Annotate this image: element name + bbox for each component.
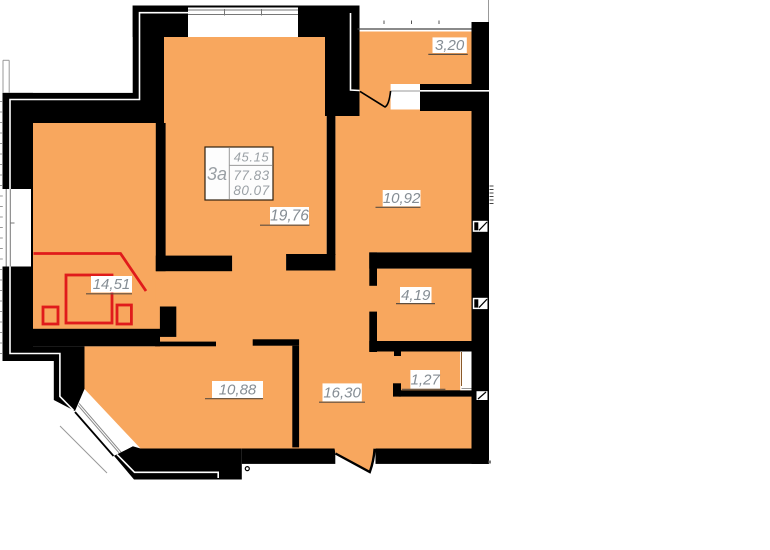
- svg-text:4,19: 4,19: [401, 287, 431, 304]
- svg-text:45.15: 45.15: [234, 150, 270, 165]
- svg-text:1,27: 1,27: [411, 371, 441, 388]
- svg-text:16,30: 16,30: [323, 384, 361, 401]
- svg-text:10,92: 10,92: [383, 190, 421, 207]
- svg-text:14,51: 14,51: [93, 276, 131, 293]
- svg-text:10,88: 10,88: [219, 382, 257, 399]
- svg-text:19,76: 19,76: [270, 208, 309, 225]
- svg-text:77.83: 77.83: [233, 168, 269, 183]
- svg-text:3a: 3a: [207, 164, 227, 184]
- svg-text:3,20: 3,20: [435, 37, 465, 54]
- svg-text:80.07: 80.07: [233, 183, 269, 198]
